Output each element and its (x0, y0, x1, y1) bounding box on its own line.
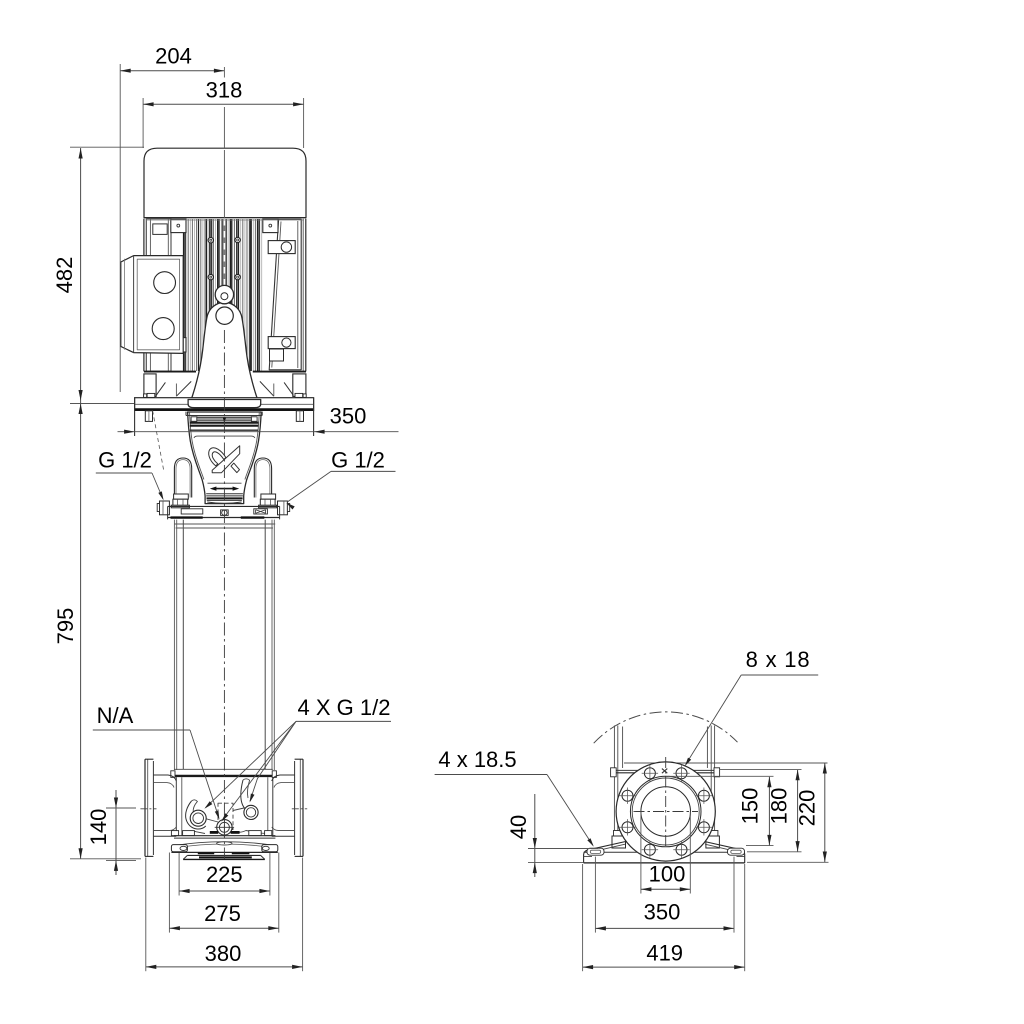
svg-text:795: 795 (53, 608, 78, 645)
svg-text:380: 380 (205, 941, 242, 966)
svg-text:204: 204 (155, 44, 192, 69)
svg-text:220: 220 (795, 790, 820, 827)
svg-text:G 1/2: G 1/2 (98, 448, 152, 473)
svg-text:100: 100 (649, 862, 686, 887)
svg-text:8 x 18: 8 x 18 (746, 647, 811, 672)
svg-text:225: 225 (206, 862, 243, 887)
svg-text:482: 482 (52, 257, 77, 294)
svg-text:318: 318 (206, 78, 243, 103)
svg-text:4 x 18.5: 4 x 18.5 (438, 747, 516, 772)
svg-text:350: 350 (330, 404, 367, 429)
svg-text:350: 350 (644, 900, 681, 925)
svg-text:G 1/2: G 1/2 (331, 448, 385, 473)
svg-text:N/A: N/A (97, 703, 134, 728)
svg-text:40: 40 (506, 815, 531, 839)
svg-text:180: 180 (767, 788, 792, 825)
svg-text:419: 419 (646, 941, 683, 966)
svg-text:140: 140 (86, 809, 111, 846)
svg-text:275: 275 (204, 901, 241, 926)
svg-text:4 X G 1/2: 4 X G 1/2 (298, 695, 391, 720)
svg-text:150: 150 (738, 788, 763, 825)
